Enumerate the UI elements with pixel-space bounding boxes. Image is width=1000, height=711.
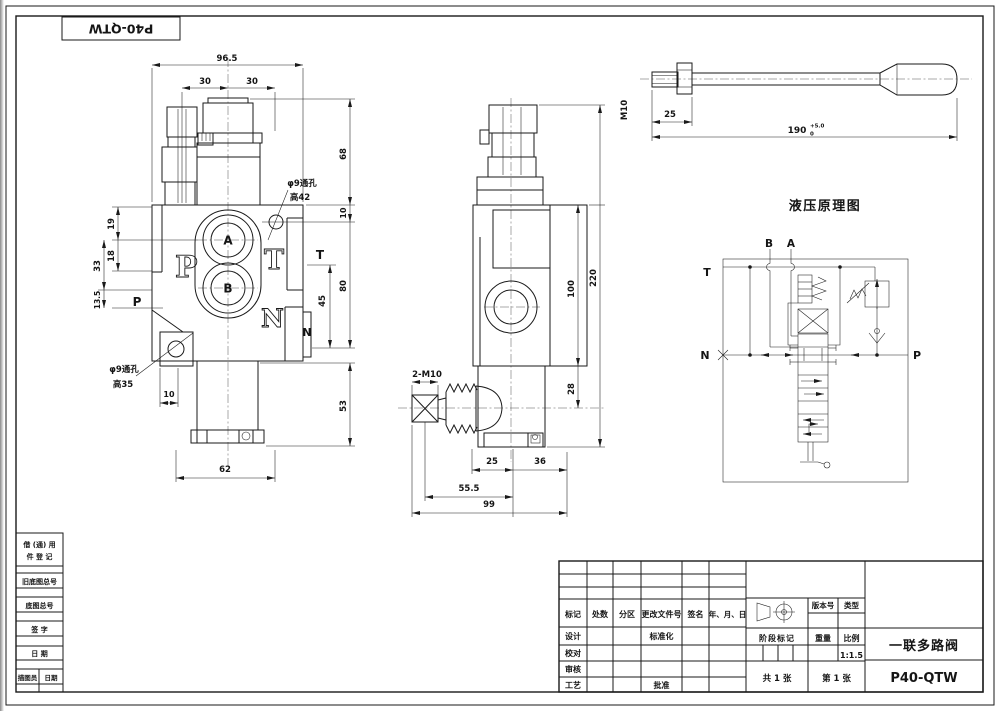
dim-62: 62 [219, 465, 231, 475]
schematic-n: N [700, 349, 709, 362]
dim-13-5: 13.5 [93, 291, 102, 310]
dim-220: 220 [589, 269, 599, 287]
port-a-label: A [223, 234, 233, 248]
front-dimensions: 96.5 30 30 19 18 33 13.5 [93, 54, 355, 482]
tb-approve: 批准 [654, 680, 670, 690]
dim-25-handle: 25 [664, 110, 676, 120]
schematic-p: P [913, 349, 921, 362]
dim-100: 100 [567, 280, 577, 298]
margin-base-no: 底图总号 [26, 601, 54, 610]
n-port-letter: N [261, 304, 284, 333]
schematic-title: 液压原理图 [789, 198, 862, 214]
schematic-a: A [787, 238, 796, 250]
hole35-line1: φ9通孔 [109, 364, 139, 375]
tb-scale-value: 1:1.5 [840, 651, 863, 660]
p-port-letter: P [175, 250, 198, 285]
schematic-border [723, 259, 908, 482]
lever-symbol [800, 442, 830, 468]
hole42-line1: φ9通孔 [287, 178, 317, 189]
hole42-line2: 高42 [290, 192, 310, 203]
dim-190: 190 [788, 126, 807, 136]
dim-45: 45 [318, 295, 328, 307]
tb-scale: 比例 [844, 633, 860, 643]
dim-55-5: 55.5 [459, 484, 480, 494]
port-b-label: B [223, 282, 232, 296]
margin-signature: 签 字 [30, 625, 47, 634]
scan-edge-shadow [0, 0, 4, 711]
margin-trace-date: 日期 [45, 673, 59, 682]
dim-53: 53 [339, 400, 349, 412]
hydraulic-schematic: 液压原理图 B A T N P [700, 198, 921, 482]
dim-19: 19 [107, 218, 117, 230]
tb-weight: 重量 [815, 633, 831, 643]
drawing-sheet: P40-QTW [0, 0, 1000, 711]
tb-mark: 标记 [564, 609, 581, 619]
tb-signature: 签名 [687, 609, 704, 619]
corner-label-box: P40-QTW [62, 17, 180, 40]
dim-30-right: 30 [246, 77, 258, 87]
schematic-t: T [703, 266, 711, 279]
relief-valve-adjuster [162, 107, 197, 205]
n-small-label: N [302, 326, 311, 339]
lever-joint [412, 384, 502, 433]
tb-model-number: P40-QTW [890, 671, 957, 686]
hole35-line2: 高35 [113, 379, 133, 390]
side-dimensions: 2-M10 100 28 220 25 36 55.5 99 [412, 105, 605, 517]
dim-96-5: 96.5 [217, 54, 238, 64]
mounting-hole-lower [168, 341, 184, 357]
side-bolt-stack [477, 105, 543, 205]
margin-borrow-line1: 借 (通) 用 [22, 540, 55, 549]
dim-99: 99 [483, 500, 495, 510]
tb-design: 设计 [565, 631, 581, 641]
corner-part-number: P40-QTW [88, 22, 153, 37]
tb-standard: 标准化 [649, 631, 674, 641]
valve-body-side [473, 205, 587, 447]
dim-30-left: 30 [199, 77, 211, 87]
tb-sheets-total: 共 1 张 [763, 673, 792, 684]
projection-symbol-icon [757, 601, 795, 623]
spool-cap [197, 98, 262, 205]
dim-28: 28 [567, 383, 577, 395]
handle-dimensions: M10 25 190 0 +5.0 [620, 90, 957, 141]
dim-36: 36 [534, 457, 546, 467]
relief-valve-symbol [847, 267, 889, 355]
spool-valve-symbol [788, 267, 840, 442]
dim-190-tol-upper: +5.0 [810, 124, 825, 130]
t-small-label: T [316, 248, 325, 262]
tb-doc-no: 更改文件号 [642, 609, 682, 619]
t-port-letter: T [264, 245, 284, 276]
dim-10-foot: 10 [163, 390, 175, 399]
front-view: A B P T N P T N φ9通孔 高42 φ9通孔 高35 [93, 54, 355, 482]
hole-note-upper: φ9通孔 高42 [268, 178, 317, 240]
margin-old-base-no: 旧底图总号 [22, 577, 57, 586]
title-block: 标记 处数 分区 更改文件号 签名 年、月、日 设计 标准化 校对 审核 工艺 … [559, 561, 983, 692]
dim-190-tol-lower: 0 [810, 132, 814, 138]
tb-sheet-no: 第 1 张 [822, 673, 851, 684]
margin-tracer: 描图员 [18, 673, 38, 682]
tb-ymd: 年、月、日 [709, 609, 747, 619]
tb-stage-mark: 阶段标记 [759, 633, 795, 643]
tb-type: 类型 [844, 600, 859, 610]
tb-product-name: 一联多路阀 [889, 638, 959, 654]
side-view: 2-M10 100 28 220 25 36 55.5 99 [398, 98, 606, 517]
tb-audit: 审核 [565, 664, 581, 674]
schematic-b: B [765, 238, 773, 250]
p-small-label: P [133, 295, 142, 309]
tb-version: 版本号 [811, 600, 835, 610]
lower-block [191, 361, 264, 443]
margin-info-blocks: 借 (通) 用 件 登 记 旧底图总号 底图总号 签 字 日 期 描图员 日期 [16, 533, 63, 692]
dim-18: 18 [107, 250, 117, 262]
dim-10-hole: 10 [339, 207, 348, 219]
margin-date: 日 期 [31, 649, 47, 658]
tb-count: 处数 [591, 609, 609, 619]
dim-80: 80 [339, 280, 349, 292]
dim-68: 68 [339, 148, 349, 160]
stud-label: 2-M10 [412, 370, 442, 380]
drawing-canvas: P40-QTW [0, 0, 1000, 711]
dim-25-side: 25 [486, 457, 498, 467]
dim-33: 33 [93, 260, 103, 272]
tb-proof: 校对 [565, 648, 581, 658]
tb-zone: 分区 [619, 609, 635, 619]
margin-borrow-line2: 件 登 记 [27, 552, 53, 561]
dim-m10: M10 [620, 100, 630, 120]
handle-view: M10 25 190 0 +5.0 [620, 63, 972, 141]
tb-process: 工艺 [565, 680, 581, 690]
